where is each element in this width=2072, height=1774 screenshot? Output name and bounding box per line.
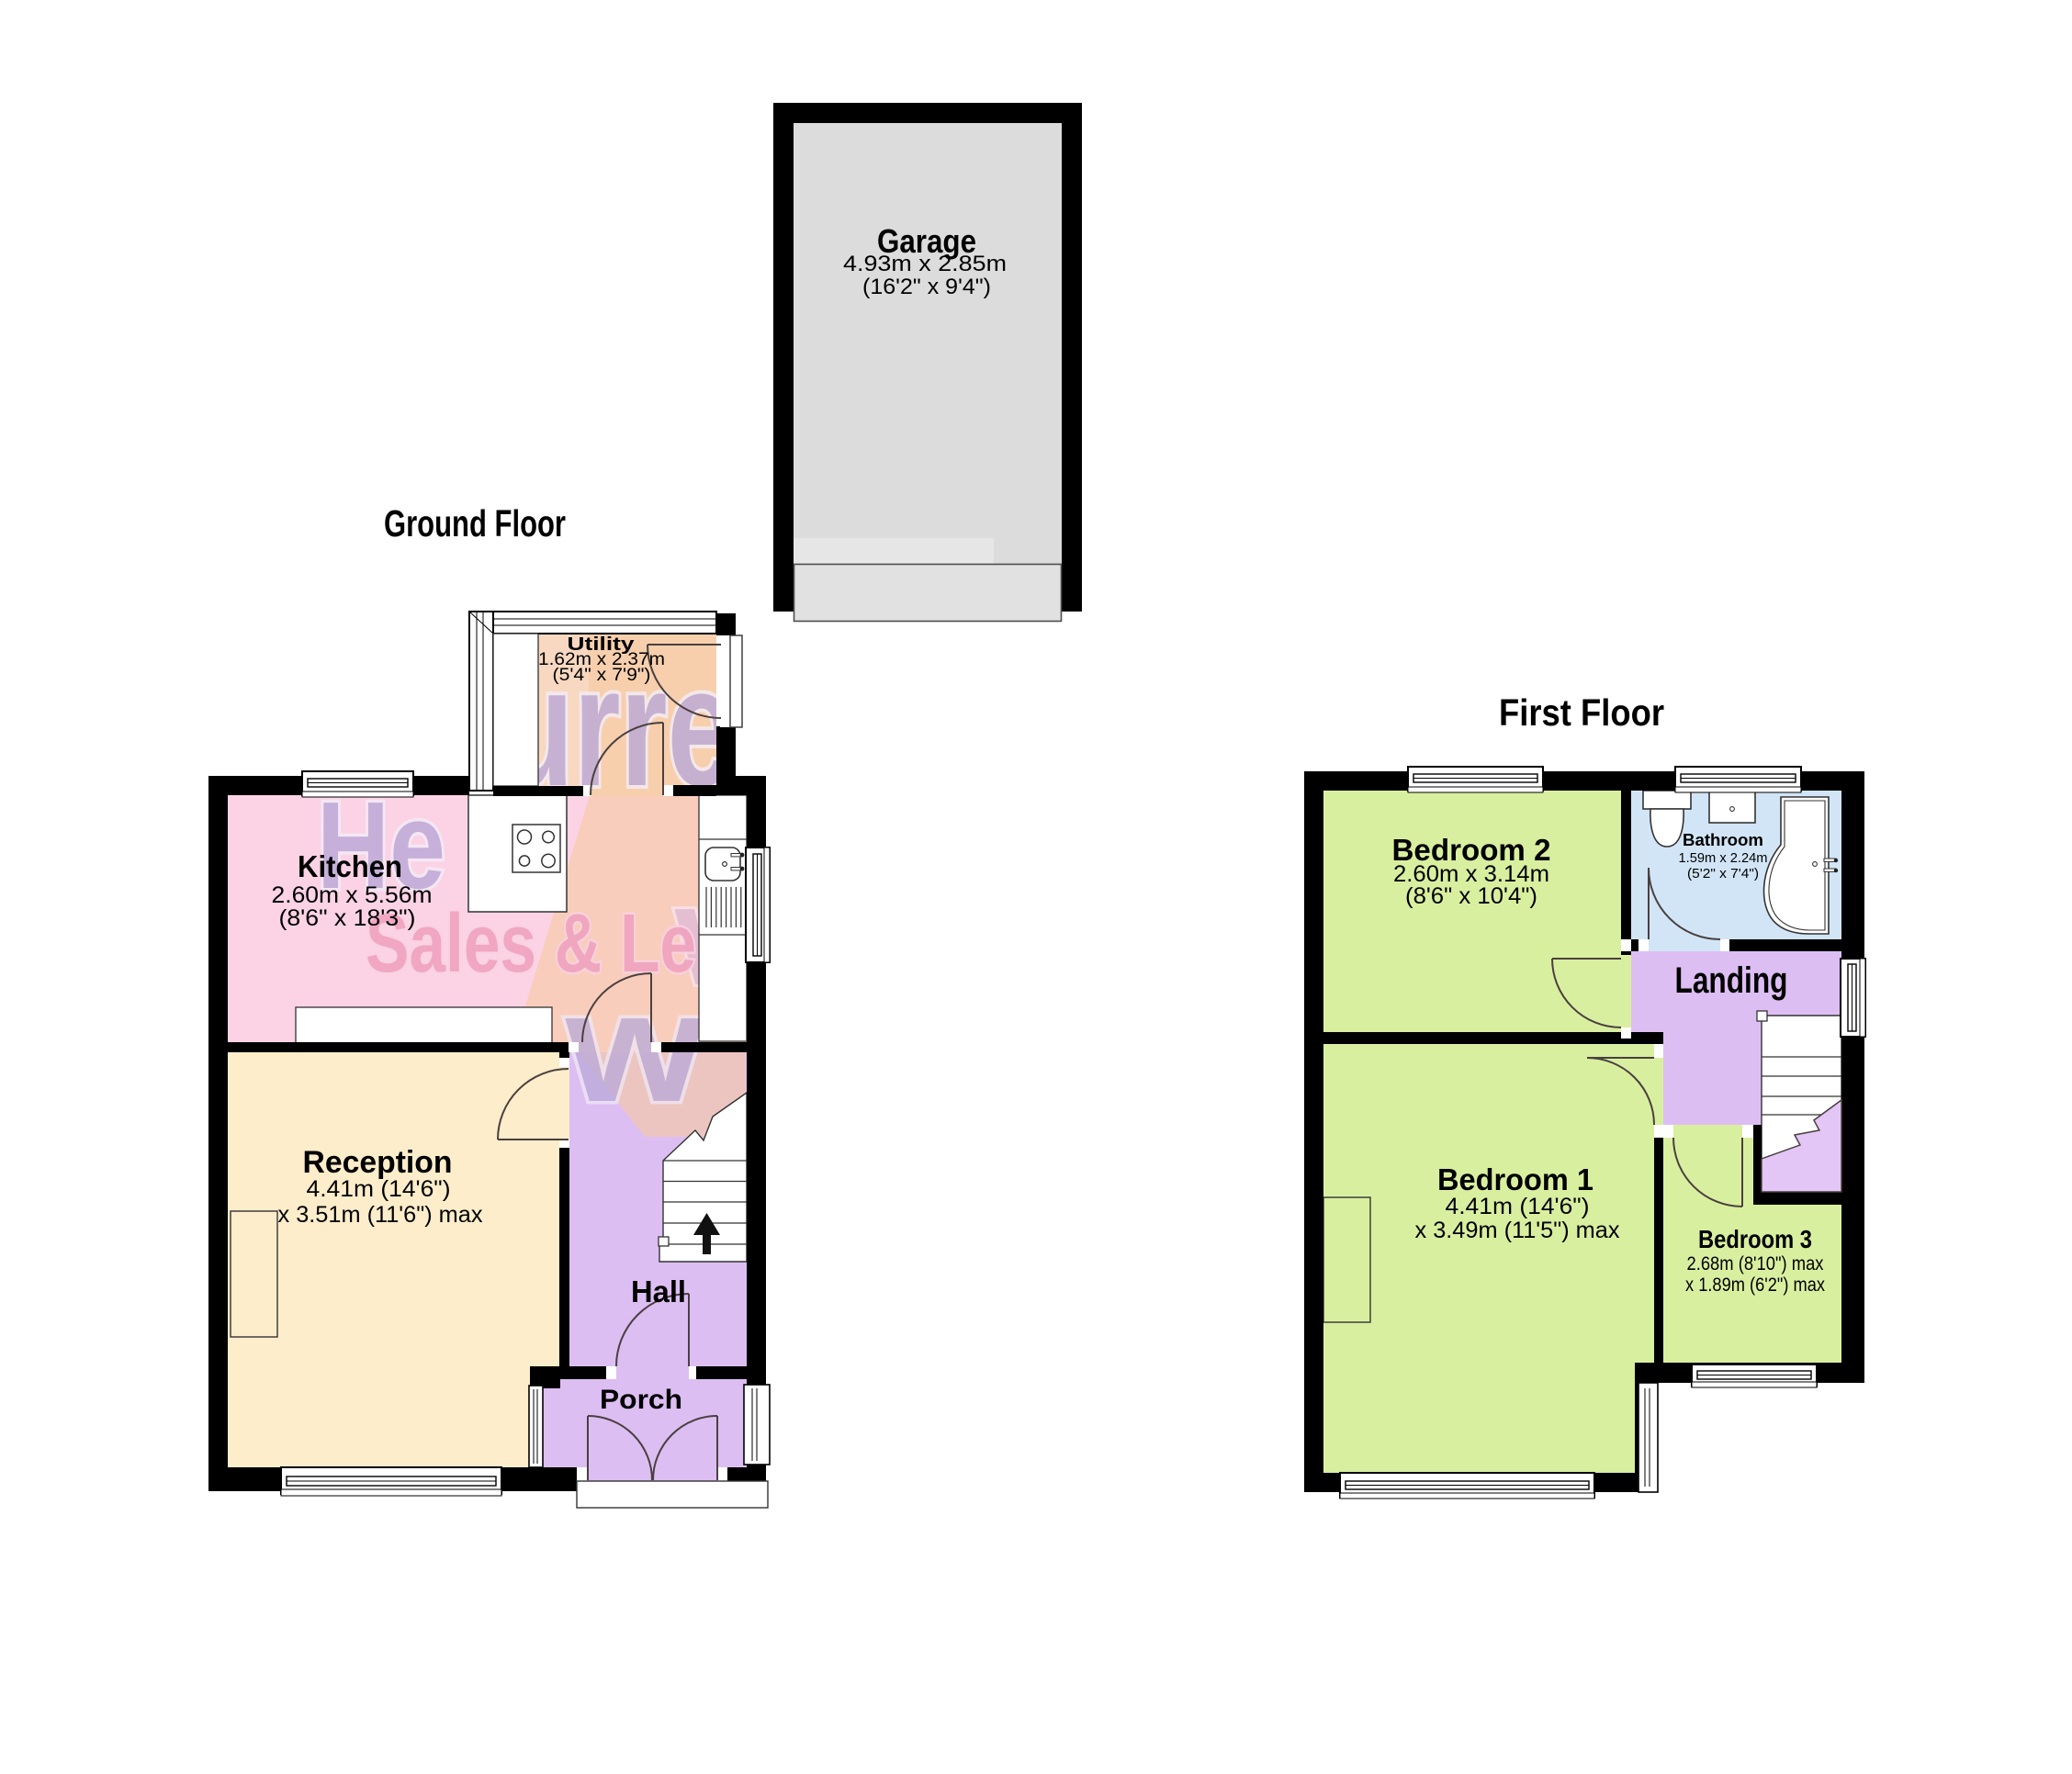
svg-text:(8'6" x 18'3"): (8'6" x 18'3") xyxy=(279,905,416,931)
svg-text:1.59m x 2.24m: 1.59m x 2.24m xyxy=(1679,851,1768,866)
svg-text:Porch: Porch xyxy=(600,1385,682,1415)
svg-text:Bedroom 3: Bedroom 3 xyxy=(1698,1225,1812,1253)
svg-text:Hall: Hall xyxy=(631,1274,686,1308)
svg-text:Kitchen: Kitchen xyxy=(298,849,402,883)
svg-text:4.41m (14'6"): 4.41m (14'6") xyxy=(307,1176,451,1202)
svg-text:(5'2" x 7'4"): (5'2" x 7'4") xyxy=(1687,867,1759,881)
svg-text:4.93m x 2.85m: 4.93m x 2.85m xyxy=(843,252,1007,276)
svg-text:x 1.89m (6'2") max: x 1.89m (6'2") max xyxy=(1685,1274,1825,1296)
svg-text:x 3.49m (11'5") max: x 3.49m (11'5") max xyxy=(1415,1218,1621,1243)
svg-text:(5'4" x 7'9"): (5'4" x 7'9") xyxy=(553,666,651,685)
svg-text:2.68m (8'10") max: 2.68m (8'10") max xyxy=(1687,1253,1824,1274)
svg-text:Ground Floor: Ground Floor xyxy=(384,502,566,545)
svg-text:(8'6" x 10'4"): (8'6" x 10'4") xyxy=(1405,883,1537,909)
svg-text:Landing: Landing xyxy=(1675,960,1788,1001)
svg-text:Bathroom: Bathroom xyxy=(1683,831,1763,849)
svg-text:First Floor: First Floor xyxy=(1499,691,1664,734)
svg-text:x 3.51m (11'6") max: x 3.51m (11'6") max xyxy=(278,1202,484,1228)
svg-text:Bedroom 1: Bedroom 1 xyxy=(1437,1162,1593,1196)
svg-text:4.41m (14'6"): 4.41m (14'6") xyxy=(1446,1194,1590,1219)
svg-text:2.60m x 5.56m: 2.60m x 5.56m xyxy=(272,882,433,908)
svg-text:(16'2" x 9'4"): (16'2" x 9'4") xyxy=(862,275,991,299)
svg-text:Reception: Reception xyxy=(303,1145,453,1180)
